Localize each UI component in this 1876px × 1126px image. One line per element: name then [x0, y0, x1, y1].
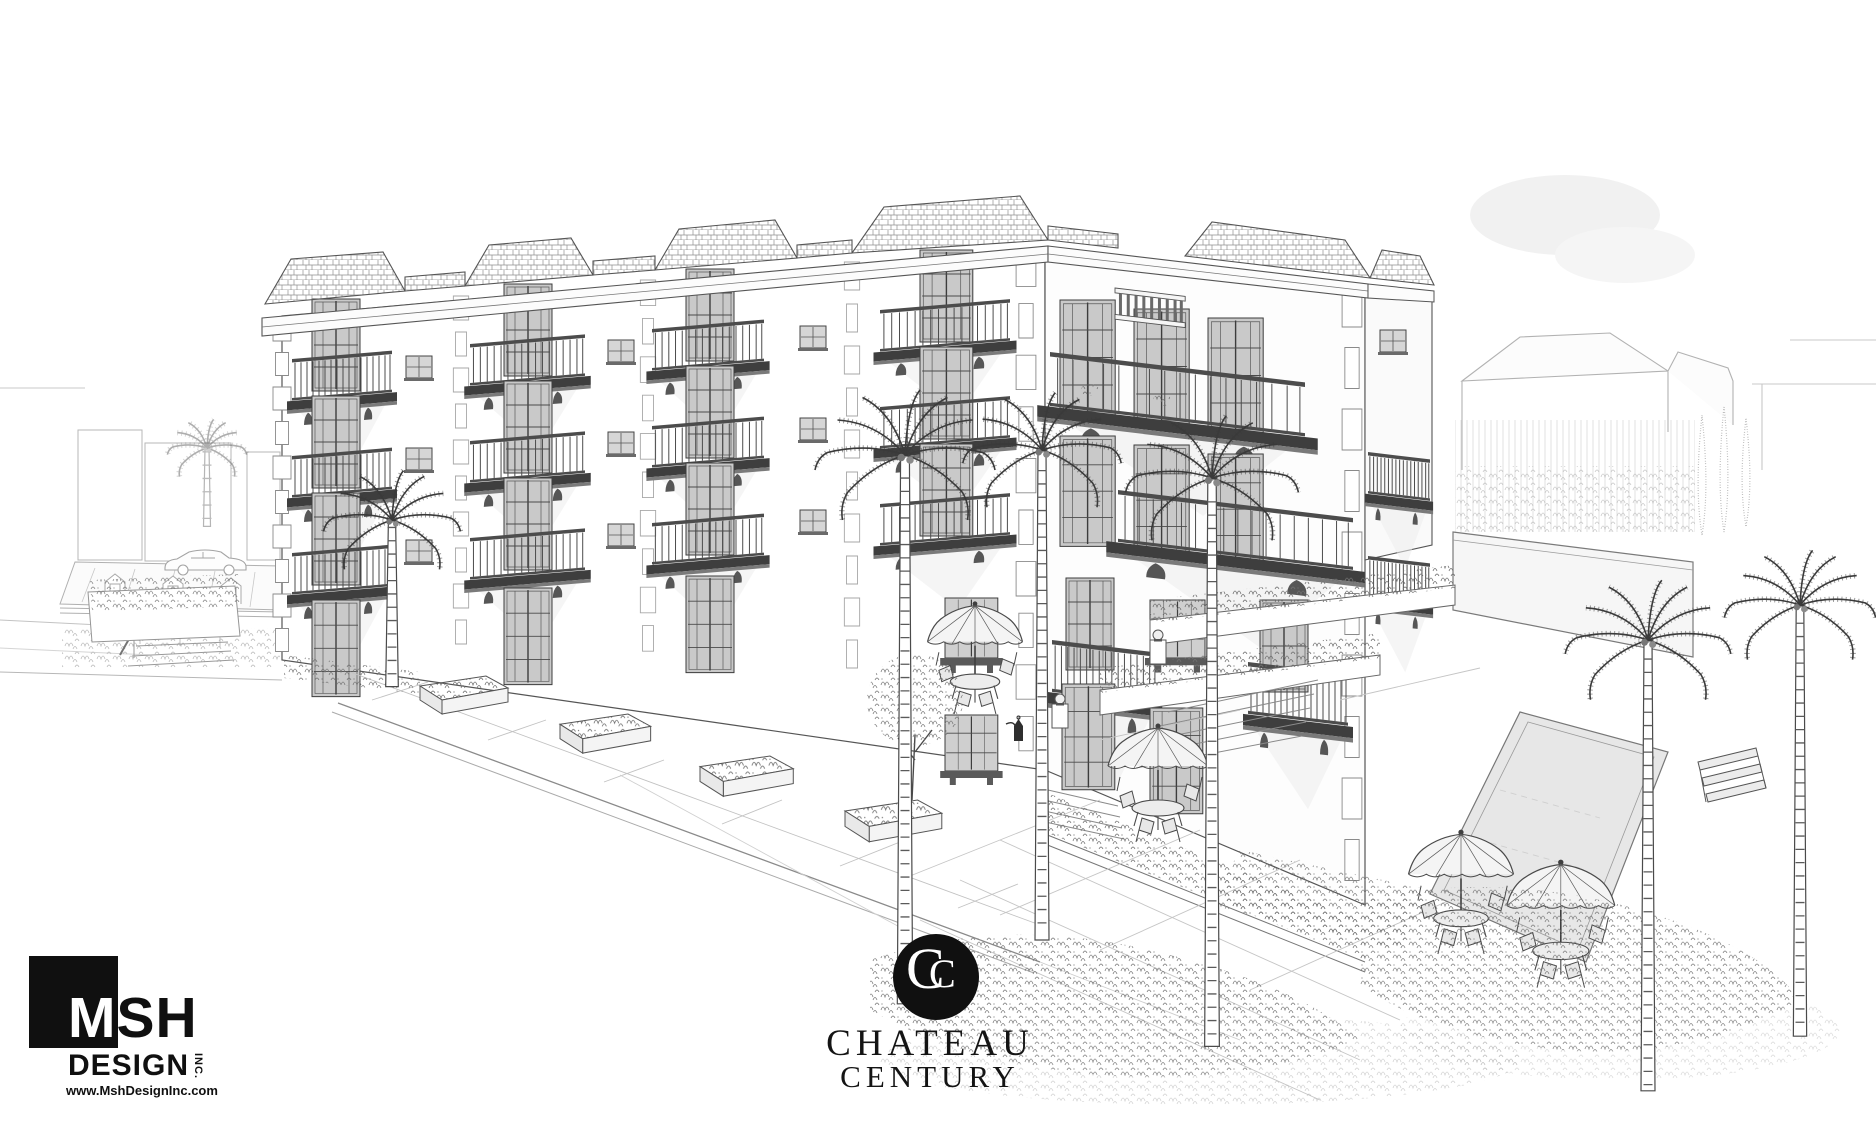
palm-trunk: [897, 455, 912, 1004]
background-palm-sketch: [167, 419, 246, 526]
msh-website-url: www.MshDesignInc.com: [66, 1083, 218, 1098]
balcony-plant: [1081, 384, 1099, 396]
palm-trunk: [204, 448, 211, 526]
roof-band: [1370, 250, 1434, 285]
project-name-line1: CHATEAU: [808, 1025, 1052, 1062]
corner-planter: [88, 574, 240, 642]
stoop-planter: [560, 714, 651, 753]
background-block: [145, 443, 231, 561]
stoop-planter: [700, 756, 793, 796]
pencil-smudge: [1555, 227, 1695, 283]
wing-window: [1378, 330, 1408, 355]
palm-trunk: [1205, 478, 1220, 1046]
stacked-lounge-chairs: [1698, 748, 1766, 802]
balcony-plant: [1153, 394, 1171, 406]
chateau-monogram-badge: C C: [893, 934, 979, 1020]
background-block: [78, 430, 142, 560]
msh-logo-wordmark: MSH: [68, 990, 198, 1047]
roof-band: [405, 272, 465, 291]
cypress-tree: [1720, 406, 1728, 532]
background-right-scene: [1455, 175, 1876, 535]
msh-design-logo: MSH DESIGN INC. www.MshDesignInc.com: [28, 950, 228, 1100]
cypress-tree: [1742, 418, 1750, 526]
palm-trunk: [1641, 640, 1655, 1091]
palm-trunk: [1793, 605, 1806, 1036]
french-door: [504, 381, 552, 473]
palm-trunk: [1035, 450, 1049, 940]
tall-window: [1060, 436, 1115, 546]
monogram-inner-c: C: [929, 954, 956, 994]
roof-band: [593, 256, 655, 275]
msh-design-label: DESIGN: [68, 1051, 189, 1081]
palm-trunk: [386, 520, 399, 687]
background-buildings: [78, 430, 280, 561]
french-door: [504, 478, 552, 570]
msh-letters-sh: SH: [116, 986, 197, 1050]
background-street-scene: [0, 388, 282, 680]
foreground-garden-fade: [1400, 980, 1840, 1080]
cypress-tree: [1698, 415, 1706, 535]
roof-mass: [265, 252, 405, 304]
roof-mass: [655, 220, 797, 270]
walk-edge-line: [620, 775, 905, 930]
roof-band: [1048, 226, 1118, 248]
entry-door: [504, 588, 552, 685]
french-door: [686, 366, 734, 458]
french-door: [686, 463, 734, 555]
project-name-line2: CENTURY: [808, 1061, 1052, 1092]
entry-door: [686, 576, 734, 673]
courtyard-tree: [867, 654, 963, 800]
french-door: [1066, 578, 1114, 670]
stoop-planter: [845, 800, 942, 842]
msh-inc-label: INC.: [192, 1053, 203, 1079]
background-shrubs: [1455, 466, 1695, 532]
msh-letter-m: M: [68, 986, 116, 1050]
roof-mass: [465, 238, 593, 286]
rendering-board: MSH DESIGN INC. www.MshDesignInc.com C C…: [0, 0, 1876, 1126]
roof-band: [797, 240, 852, 258]
roof-mass-tower: [852, 196, 1048, 253]
